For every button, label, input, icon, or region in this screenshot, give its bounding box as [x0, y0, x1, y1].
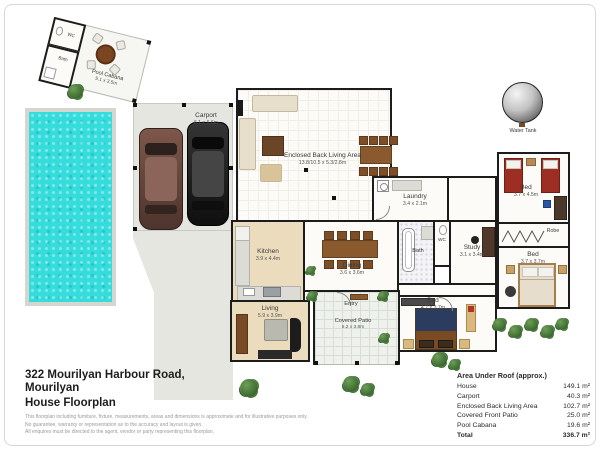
post-icon — [133, 103, 137, 107]
tree-icon — [378, 291, 388, 301]
pool-water — [29, 112, 112, 302]
chair-icon — [363, 231, 373, 240]
room-label-kitchen: Kitchen 3.9 x 4.4m — [245, 248, 291, 263]
bench-icon — [392, 180, 422, 191]
post-icon — [229, 103, 233, 107]
chair-icon — [379, 136, 388, 145]
tree-icon — [240, 379, 258, 397]
door-mat-icon — [350, 294, 368, 300]
area-table-row: Covered Front Patio25.0 m² — [457, 411, 590, 421]
chair-icon — [350, 231, 360, 240]
area-table-total-row: Total336.7 m² — [457, 431, 590, 441]
sofa-icon — [264, 319, 288, 341]
room-label-living: Living 5.9 x 3.9m — [248, 305, 292, 320]
room-label-wc: WC — [434, 238, 450, 244]
chair-icon — [359, 167, 368, 176]
room-label-laundry: Laundry 3.4 x 2.1m — [390, 193, 440, 208]
tree-icon — [525, 318, 538, 331]
room-label-entry: Entry — [336, 301, 366, 308]
tree-icon — [379, 333, 389, 343]
post-icon — [146, 40, 151, 45]
area-table-row: Carport40.3 m² — [457, 392, 590, 402]
water-tank-icon — [502, 82, 543, 123]
pool-cabana: WC Bath Pool Cabana 5.1 x 3.5m — [39, 17, 152, 103]
room-label-cabana-bath: Bath — [58, 55, 68, 62]
cabinet-icon — [466, 304, 476, 332]
room-label-bed2: Bed 3.7 x 3.7m — [515, 251, 551, 266]
nightstand-icon — [459, 339, 470, 349]
tree-icon — [556, 318, 568, 330]
table-icon — [322, 240, 378, 258]
room-label-cabana-wc: WC — [67, 32, 76, 39]
room-label-bed3: Bed 4.7 x 3.7m — [415, 297, 451, 312]
tree-icon — [449, 359, 460, 370]
car-icon — [139, 128, 183, 230]
post-icon — [229, 166, 233, 170]
kitchen-counter-icon — [235, 240, 250, 286]
chair-icon — [359, 136, 368, 145]
bookcase-icon — [236, 314, 248, 354]
tree-icon — [361, 383, 374, 396]
chair-icon — [116, 40, 127, 51]
room-cabana-bath: Bath — [38, 44, 79, 89]
room-label-study: Study 3.1 x 3.4m — [452, 244, 492, 259]
post-icon — [314, 361, 318, 365]
area-table-title: Area Under Roof (approx.) — [457, 371, 590, 381]
water-tank-label: Water Tank — [498, 128, 548, 135]
room-label-pool-cabana: Pool Cabana 5.1 x 3.5m — [75, 65, 138, 93]
chair-icon — [389, 136, 398, 145]
sink-icon — [243, 288, 255, 296]
room-label-bed1: Bed 3.7 x 4.5m — [508, 184, 544, 199]
room-dining — [303, 220, 399, 292]
document-title: House Floorplan — [25, 397, 116, 409]
floorplan-page: WC Bath Pool Cabana 5.1 x 3.5m Carport 6… — [0, 0, 600, 450]
area-table-row: House149.1 m² — [457, 382, 590, 392]
bed-icon — [415, 308, 457, 350]
room-label-back-living: Enclosed Back Living Area 13.8/10.5 x 5.… — [270, 152, 375, 167]
chair-icon — [324, 231, 334, 240]
area-table-row: Enclosed Back Living Area102.7 m² — [457, 402, 590, 412]
tree-icon — [493, 318, 506, 331]
room-robe — [497, 222, 570, 248]
washing-machine-icon — [377, 180, 389, 192]
nightstand-icon — [403, 339, 414, 349]
media-unit-icon — [258, 350, 292, 359]
door-arc-icon — [376, 206, 390, 220]
tree-icon — [68, 84, 83, 99]
chair-icon — [379, 167, 388, 176]
dresser-icon — [554, 196, 567, 220]
post-icon — [133, 166, 137, 170]
sofa-icon — [252, 95, 298, 112]
room-label-carport: Carport 6.1 x 6.6m — [173, 112, 239, 127]
nightstand-icon — [506, 265, 515, 274]
nightstand-icon — [526, 158, 536, 166]
post-icon — [355, 361, 359, 365]
room-label-bath: Bath — [405, 248, 431, 255]
post-icon — [182, 103, 186, 107]
chair-icon — [92, 32, 104, 44]
rug-icon — [505, 286, 516, 297]
sofa-icon — [239, 118, 256, 170]
chair-icon — [389, 167, 398, 176]
chair-icon — [369, 136, 378, 145]
tree-icon — [306, 266, 315, 275]
post-icon — [304, 168, 308, 172]
room-label-dining: Dining 3.6 x 3.6m — [330, 262, 374, 277]
chair-icon — [369, 167, 378, 176]
toilet-icon — [439, 225, 447, 235]
nightstand-icon — [558, 265, 567, 274]
shower-icon — [43, 66, 56, 79]
area-table-row: Pool Cabana19.6 m² — [457, 421, 590, 431]
hallway — [447, 176, 497, 222]
chair-icon — [543, 200, 551, 208]
tree-icon — [343, 376, 359, 392]
tree-icon — [509, 325, 522, 338]
tree-icon — [432, 352, 447, 367]
room-label-covered-patio: Covered Patio 5.2 x 3.8m — [334, 318, 372, 331]
chair-icon — [337, 231, 347, 240]
post-icon — [332, 196, 336, 200]
armchair-icon — [260, 164, 282, 182]
stove-icon — [263, 287, 281, 297]
tv-icon — [290, 318, 301, 352]
pool — [25, 108, 116, 306]
bed-icon — [518, 263, 556, 307]
area-table: Area Under Roof (approx.) House149.1 m² … — [457, 371, 590, 441]
post-icon — [133, 227, 137, 231]
room-label-robe: Robe — [540, 228, 566, 235]
toilet-icon — [55, 26, 64, 36]
office-chair-icon — [471, 236, 479, 244]
water-tank-tap-icon — [519, 123, 525, 127]
property-address: 322 Mourilyan Harbour Road, Mourilyan — [25, 369, 185, 395]
disclaimer: This floorplan including furniture, fixt… — [25, 414, 308, 437]
tree-icon — [307, 291, 317, 301]
post-icon — [395, 361, 399, 365]
car-icon — [187, 122, 229, 226]
tree-icon — [541, 325, 554, 338]
